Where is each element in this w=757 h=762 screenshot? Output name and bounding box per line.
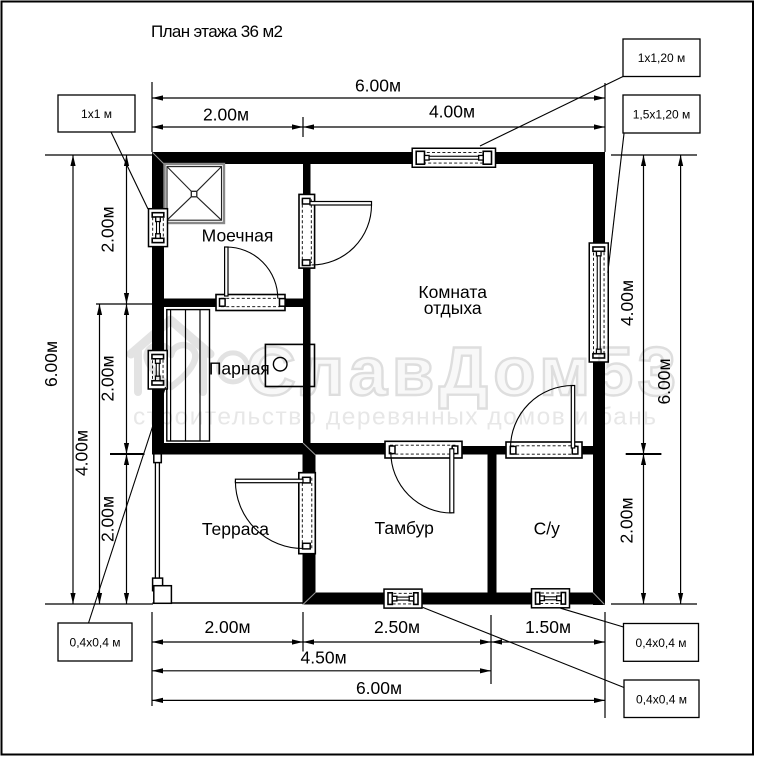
- svg-text:1х1 м: 1х1 м: [81, 107, 112, 121]
- svg-text:4.00м: 4.00м: [72, 430, 92, 476]
- svg-text:строительство деревянных домов: строительство деревянных домов и бань: [133, 404, 656, 431]
- svg-text:4.00м: 4.00м: [617, 280, 637, 326]
- svg-text:2.50м: 2.50м: [374, 617, 420, 637]
- svg-text:4.50м: 4.50м: [301, 648, 347, 668]
- svg-text:Моечная: Моечная: [202, 226, 274, 246]
- svg-text:С/у: С/у: [534, 519, 561, 539]
- svg-text:1.50м: 1.50м: [525, 617, 571, 637]
- svg-text:4.00м: 4.00м: [429, 102, 475, 122]
- svg-text:6.00м: 6.00м: [355, 76, 401, 96]
- svg-text:0,4х0,4 м: 0,4х0,4 м: [636, 693, 687, 707]
- svg-text:2.00м: 2.00м: [98, 206, 118, 252]
- svg-text:0,4х0,4 м: 0,4х0,4 м: [636, 636, 687, 650]
- svg-text:2.00м: 2.00м: [98, 355, 118, 401]
- svg-text:План этажа 36 м2: План этажа 36 м2: [151, 22, 283, 41]
- svg-text:2.00м: 2.00м: [98, 496, 118, 542]
- svg-text:Тамбур: Тамбур: [374, 518, 433, 538]
- svg-text:2.00м: 2.00м: [617, 497, 637, 543]
- svg-text:1,5х1,20 м: 1,5х1,20 м: [633, 108, 691, 122]
- svg-text:Терраса: Терраса: [202, 519, 269, 539]
- svg-text:2.00м: 2.00м: [203, 105, 249, 125]
- svg-text:6.00м: 6.00м: [41, 341, 61, 387]
- svg-text:0,4х0,4 м: 0,4х0,4 м: [70, 636, 121, 650]
- svg-text:1х1,20 м: 1х1,20 м: [638, 51, 686, 65]
- svg-text:2.00м: 2.00м: [204, 617, 250, 637]
- svg-text:6.00м: 6.00м: [356, 678, 402, 698]
- svg-text:отдыха: отдыха: [424, 298, 482, 318]
- svg-text:СлавДом53: СлавДом53: [246, 333, 676, 410]
